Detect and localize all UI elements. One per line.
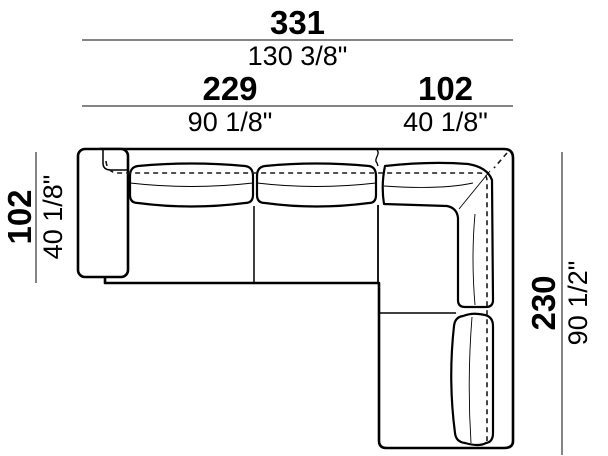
corner-dashed-seam [494, 153, 507, 168]
left-armrest [78, 149, 128, 277]
sofa-top-view [0, 0, 608, 456]
corner-cushion [383, 163, 493, 307]
fabric-seam-squiggle [376, 150, 378, 166]
diagram-canvas: 331 130 3/8" 229 102 90 1/8" 40 1/8" 102… [0, 0, 608, 456]
